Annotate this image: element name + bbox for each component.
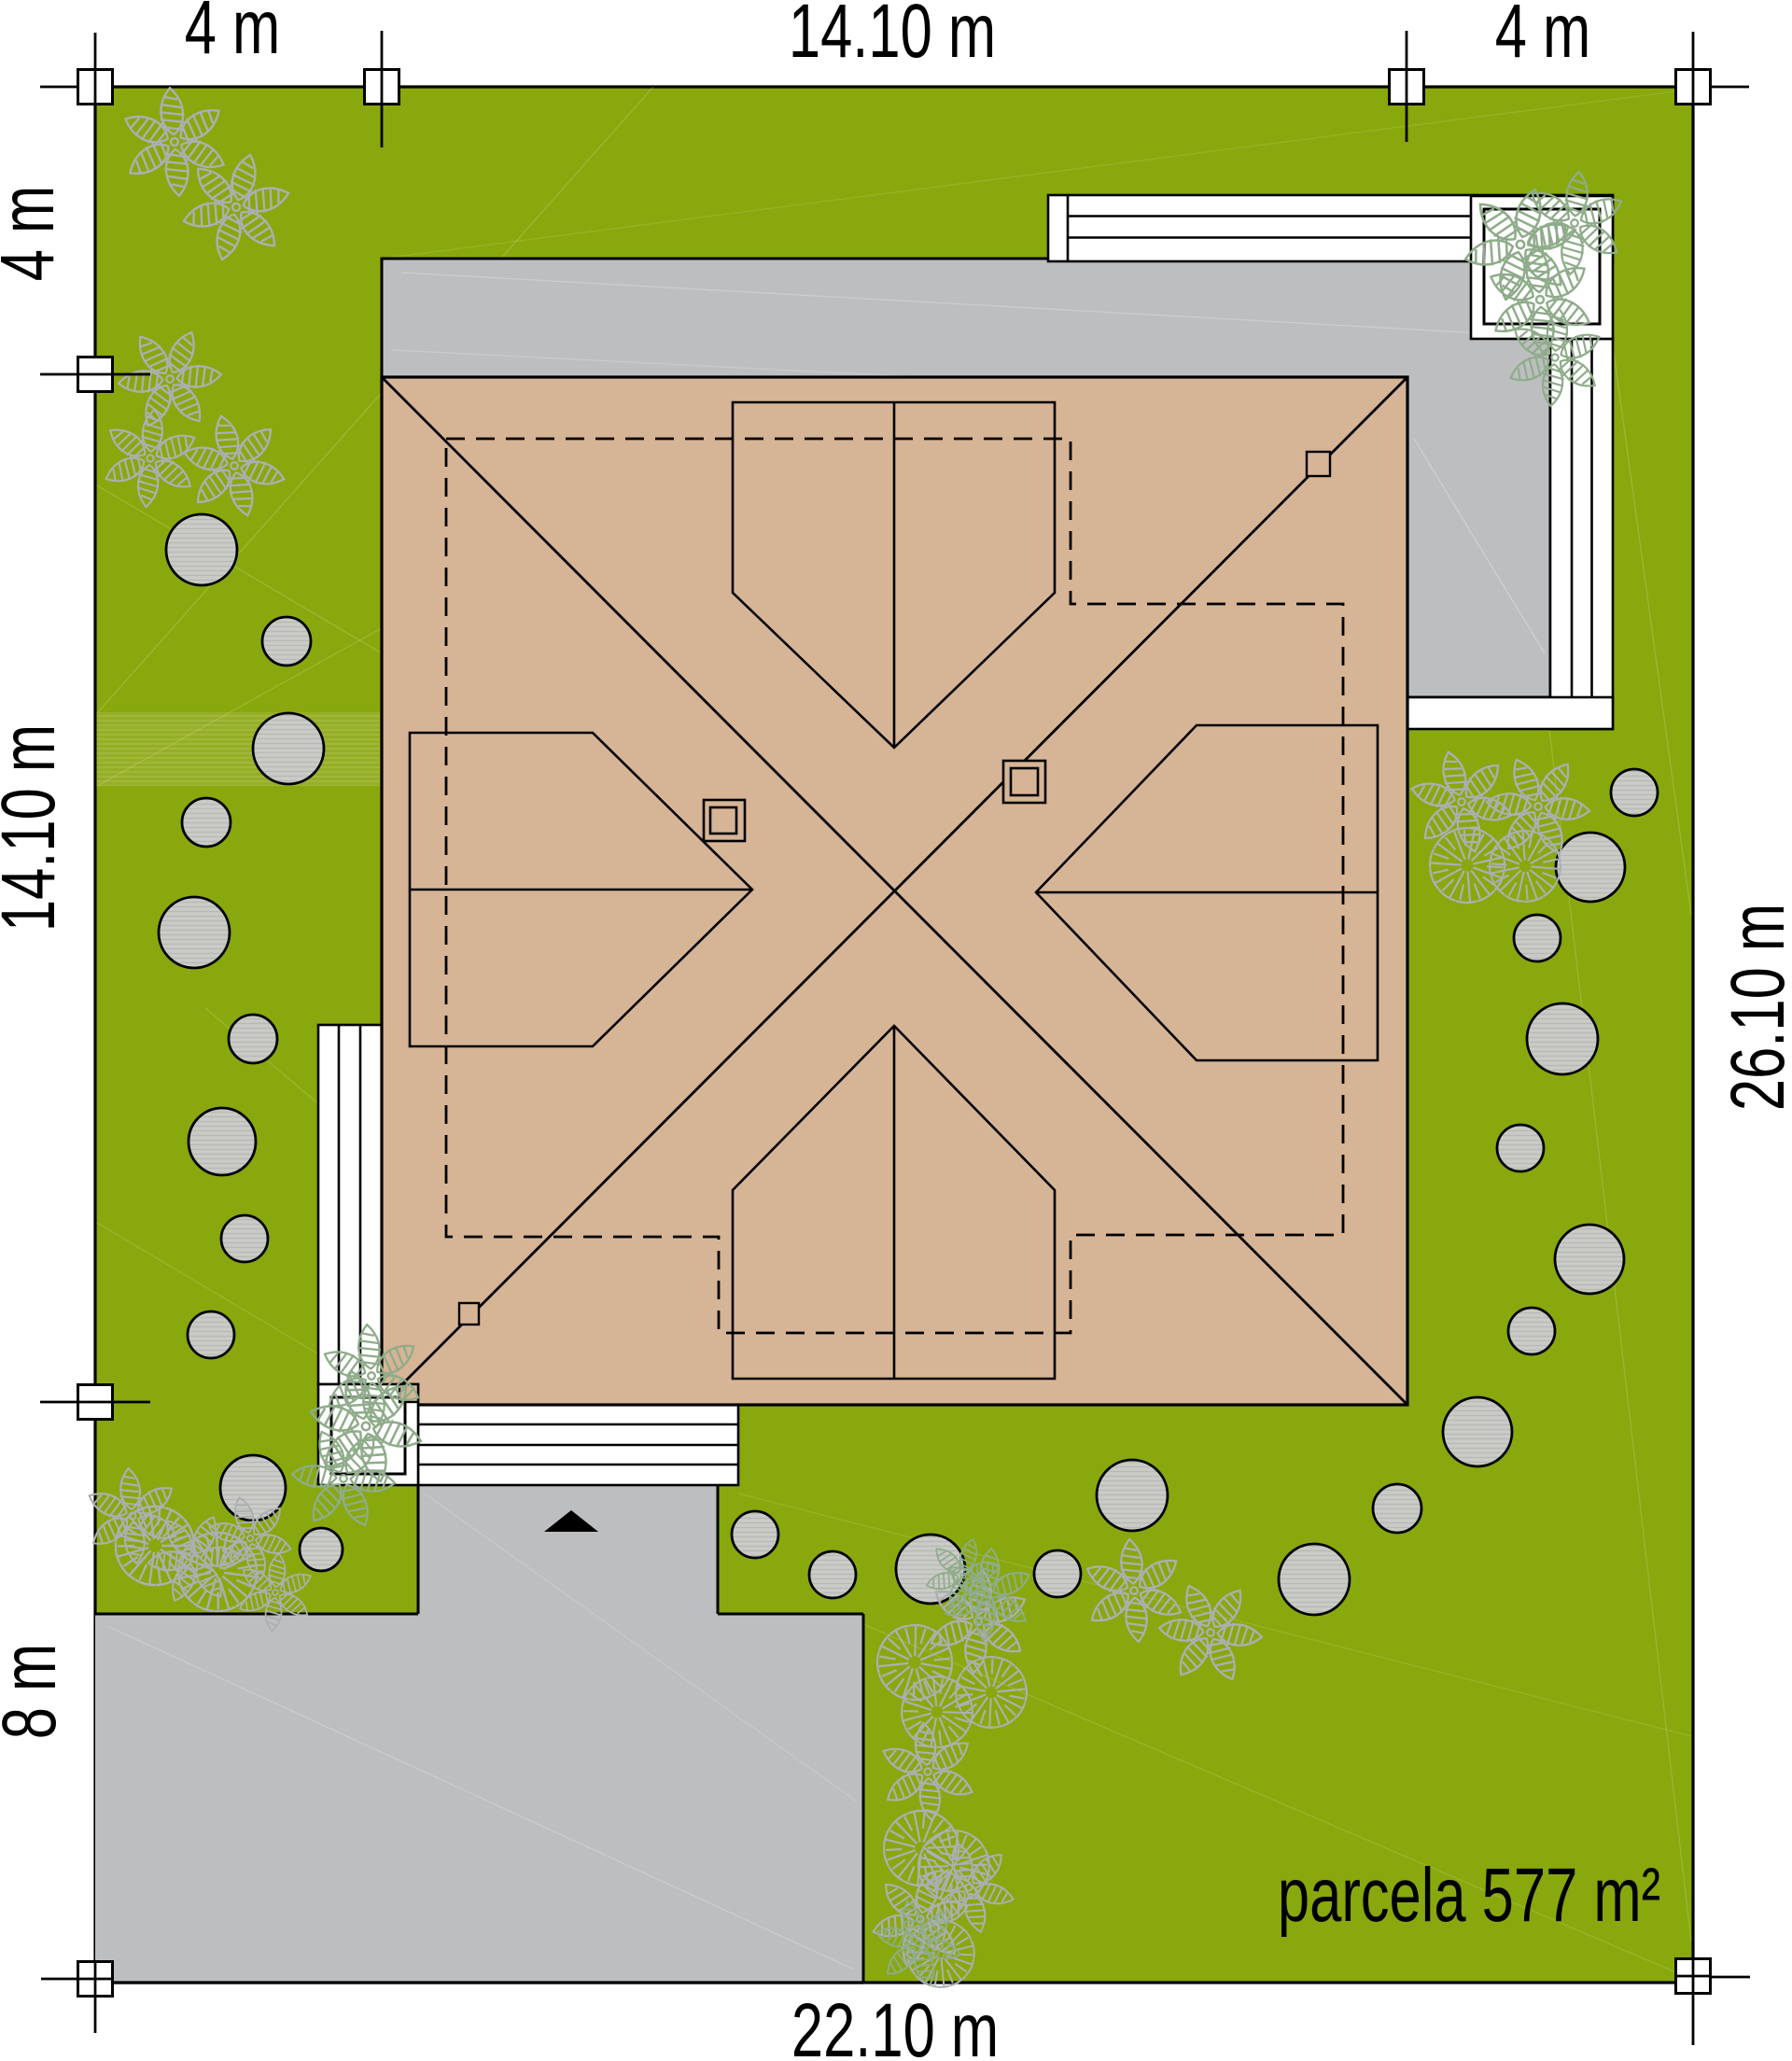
svg-text:4 m: 4 m bbox=[1495, 0, 1591, 74]
svg-text:4 m: 4 m bbox=[185, 0, 281, 70]
svg-text:parcela 577 m²: parcela 577 m² bbox=[1278, 1852, 1660, 1938]
svg-text:4 m: 4 m bbox=[0, 186, 70, 282]
svg-text:8 m: 8 m bbox=[0, 1644, 72, 1740]
svg-text:14.10 m: 14.10 m bbox=[0, 724, 71, 932]
svg-text:22.10 m: 22.10 m bbox=[791, 1987, 999, 2061]
svg-text:14.10 m: 14.10 m bbox=[789, 0, 996, 74]
svg-text:26.10 m: 26.10 m bbox=[1715, 904, 1792, 1111]
